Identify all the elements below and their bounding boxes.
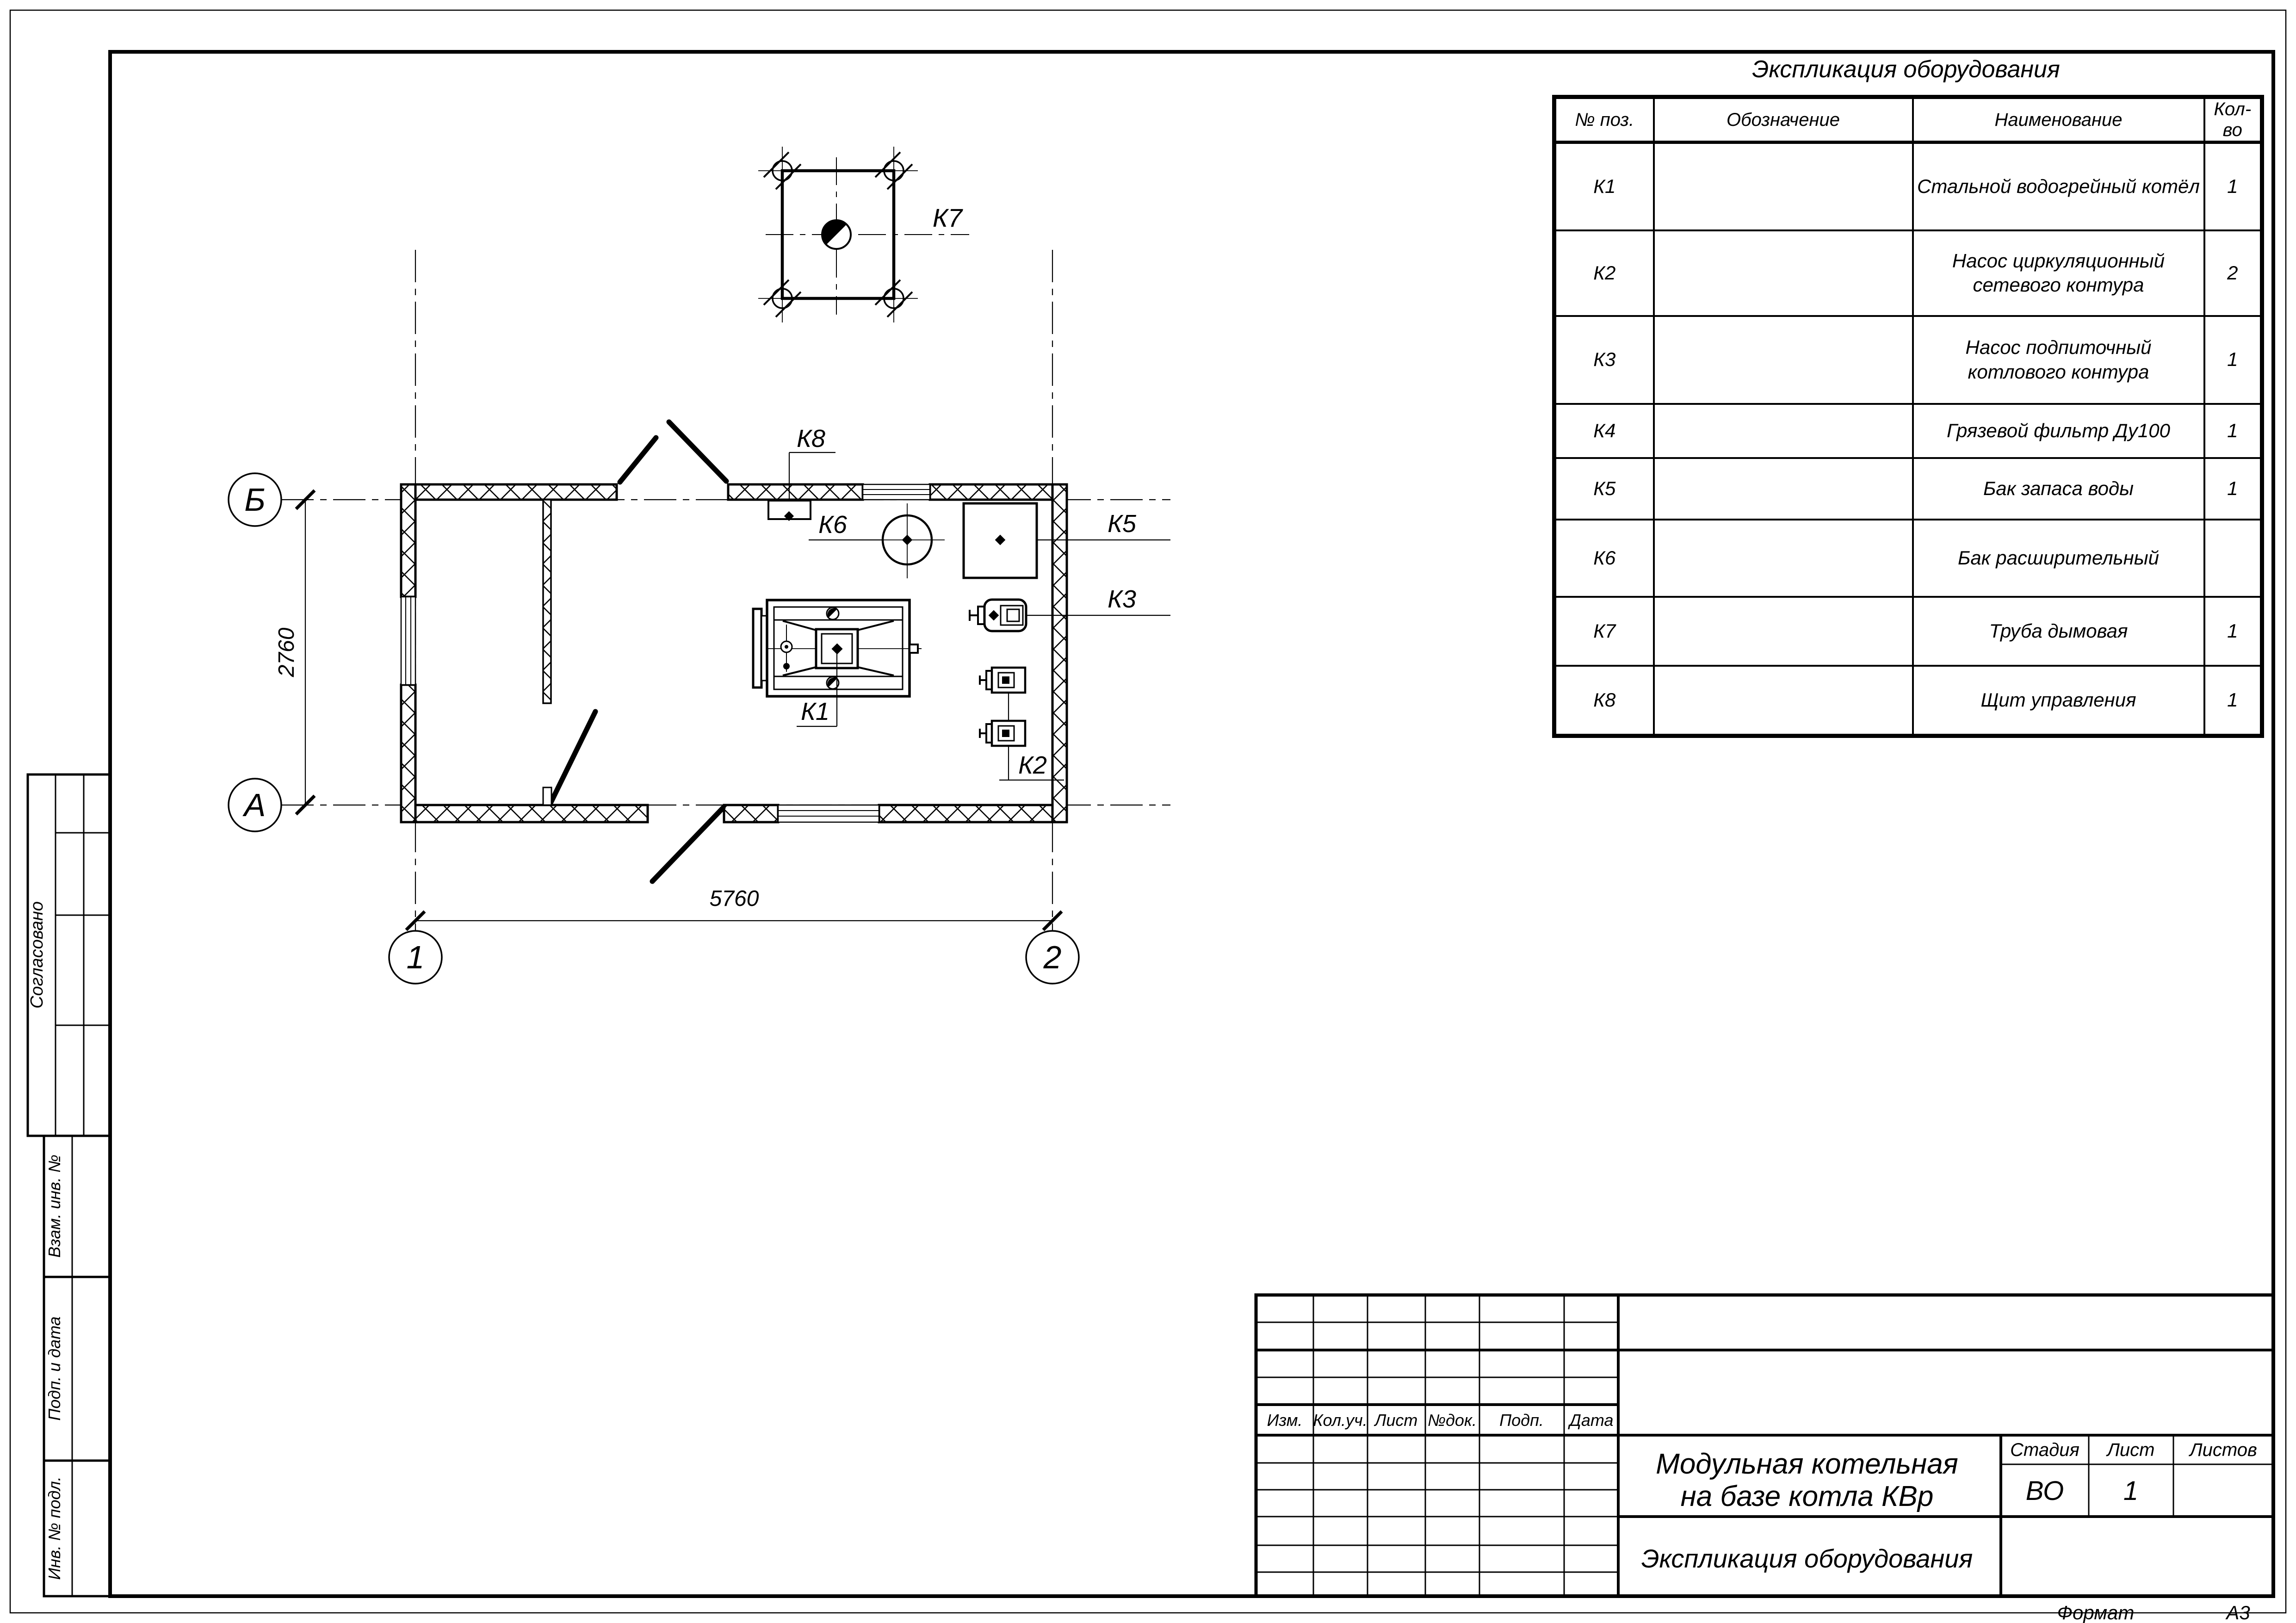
- wall-right: [1052, 484, 1067, 822]
- equipment-table-title: Экспликация оборудования: [1552, 56, 2260, 83]
- stamp-replace-inv-label: Взам. инв. №: [45, 1155, 64, 1258]
- stage-value: ВО: [2026, 1476, 2064, 1506]
- cell-qty: 1: [2204, 666, 2262, 736]
- cell-designation: [1654, 230, 1913, 316]
- anchor-bolt-icon: [870, 147, 918, 195]
- cell-qty: 1: [2204, 142, 2262, 230]
- cell-name: Бак запаса воды: [1913, 458, 2204, 520]
- cell-designation: [1654, 142, 1913, 230]
- boiler-furnace-door: [753, 609, 761, 688]
- anchor-bolt-icon: [758, 147, 806, 195]
- table-row: К4 Грязевой фильтр Ду100 1: [1554, 404, 2262, 458]
- wall-left-lower: [401, 685, 415, 822]
- sheets-label: Листов: [2188, 1440, 2257, 1460]
- cell-pos: К3: [1554, 316, 1654, 404]
- cell-designation: [1654, 666, 1913, 736]
- cell-name: Грязевой фильтр Ду100: [1913, 404, 2204, 458]
- format-value: А3: [2225, 1602, 2250, 1623]
- wall-top-right: [930, 484, 1067, 500]
- drawing-sheet: Б А 1 2 2760 5760: [0, 0, 2296, 1623]
- k6-expansion-tank: К6: [809, 503, 945, 578]
- col-header-pos: № поз.: [1554, 97, 1654, 142]
- dimension-vertical: 2760: [274, 490, 315, 814]
- doc-title: Экспликация оборудования: [1641, 1544, 1973, 1573]
- stamp-replace-inv: Взам. инв. №: [44, 1136, 110, 1277]
- cell-name: Насос циркуляционный сетевого контура: [1913, 230, 2204, 316]
- axis-label-a: А: [242, 787, 266, 823]
- cell-designation: [1654, 316, 1913, 404]
- cell-pos: К6: [1554, 520, 1654, 597]
- table-row: К6 Бак расширительный: [1554, 520, 2262, 597]
- stamp-agreed-label: Согласовано: [27, 901, 47, 1009]
- k6-tag: К6: [818, 511, 848, 539]
- col-header-des: Обозначение: [1654, 97, 1913, 142]
- table-header-row: № поз. Обозначение Наименование Кол-во: [1554, 97, 2262, 142]
- door-leaf-top-right: [669, 422, 726, 481]
- window-top: [863, 484, 930, 500]
- sheet-label: Лист: [2106, 1440, 2155, 1460]
- rev-header-ndok: №док.: [1428, 1411, 1477, 1430]
- cell-qty: 1: [2204, 316, 2262, 404]
- cell-name: Бак расширительный: [1913, 520, 2204, 597]
- door-leaf-bottom-exterior: [652, 808, 723, 881]
- k8-control-panel: К8: [768, 425, 835, 521]
- cell-qty: 2: [2204, 230, 2262, 316]
- k3-tag: К3: [1108, 585, 1136, 613]
- axis-label-1: 1: [407, 939, 425, 975]
- cell-qty: 1: [2204, 458, 2262, 520]
- k7-chimney-detail: К7: [758, 147, 969, 322]
- pump-icon: [980, 721, 1025, 746]
- cell-pos: К7: [1554, 597, 1654, 666]
- project-title-line2: на базе котла КВр: [1681, 1481, 1934, 1512]
- dim-2760: 2760: [274, 627, 299, 677]
- cell-pos: К4: [1554, 404, 1654, 458]
- stamp-inv-orig-label: Инв. № подл.: [45, 1476, 64, 1580]
- dimension-horizontal: 5760: [406, 886, 1062, 930]
- cell-name: Труба дымовая: [1913, 597, 2204, 666]
- k1-tag: К1: [801, 698, 829, 725]
- side-stamps: Согласовано Взам. инв. № Подп. и дата Ин…: [27, 774, 110, 1596]
- table-row: К2 Насос циркуляционный сетевого контура…: [1554, 230, 2262, 316]
- wall-top-mid: [728, 484, 863, 500]
- table-row: К7 Труба дымовая 1: [1554, 597, 2262, 666]
- cell-designation: [1654, 597, 1913, 666]
- cell-designation: [1654, 458, 1913, 520]
- format-label: Формат: [2057, 1602, 2135, 1623]
- title-block: Изм. Кол.уч. Лист №док. Подп. Дата Модул…: [1256, 1295, 2273, 1623]
- wall-bottom-right: [879, 805, 1067, 822]
- stage-label: Стадия: [2010, 1440, 2079, 1460]
- table-row: К3 Насос подпиточный котлового контура 1: [1554, 316, 2262, 404]
- table-row: К5 Бак запаса воды 1: [1554, 458, 2262, 520]
- project-title-line1: Модульная котельная: [1656, 1448, 1958, 1480]
- wall-left-upper: [401, 484, 415, 597]
- axis-label-2: 2: [1043, 939, 1062, 975]
- rev-header-podp: Подп.: [1499, 1411, 1544, 1430]
- k2-tag: К2: [1018, 751, 1047, 779]
- cell-name: Щит управления: [1913, 666, 2204, 736]
- cell-pos: К1: [1554, 142, 1654, 230]
- cell-name: Стальной водогрейный котёл: [1913, 142, 2204, 230]
- wall-bottom-mid: [724, 805, 778, 822]
- stamp-sign-date-label: Подп. и дата: [45, 1316, 64, 1420]
- anchor-bolt-icon: [758, 274, 806, 322]
- cell-pos: К5: [1554, 458, 1654, 520]
- k1-boiler: К1: [753, 600, 922, 726]
- cell-pos: К8: [1554, 666, 1654, 736]
- col-header-qty: Кол-во: [2204, 97, 2262, 142]
- door-leaf-partition: [551, 712, 595, 802]
- cell-pos: К2: [1554, 230, 1654, 316]
- k7-tag: К7: [933, 203, 963, 232]
- cell-designation: [1654, 520, 1913, 597]
- k8-tag: К8: [797, 425, 825, 452]
- anchor-bolt-icon: [870, 274, 918, 322]
- partition-wall: [543, 500, 551, 703]
- door-jamb: [543, 787, 551, 805]
- wall-bottom-left: [401, 805, 648, 822]
- window-bottom: [778, 805, 879, 822]
- sheet-value: 1: [2123, 1476, 2138, 1506]
- cell-qty: 1: [2204, 597, 2262, 666]
- stamp-sign-date: Подп. и дата: [44, 1277, 110, 1461]
- stamp-agreed: Согласовано: [27, 774, 110, 1136]
- rev-header-data: Дата: [1568, 1411, 1614, 1430]
- rev-header-list: Лист: [1374, 1411, 1418, 1430]
- pump-icon: [980, 668, 1025, 693]
- axis-markers: Б А 1 2: [229, 473, 1079, 984]
- dim-5760: 5760: [710, 886, 759, 911]
- stamp-inv-orig: Инв. № подл.: [44, 1461, 110, 1596]
- axis-label-b: Б: [244, 482, 266, 518]
- cell-designation: [1654, 404, 1913, 458]
- k5-tag: К5: [1108, 510, 1137, 538]
- door-leaf-top-left: [620, 438, 656, 482]
- rev-header-koluch: Кол.уч.: [1313, 1411, 1367, 1430]
- window-left: [401, 597, 415, 685]
- wall-top-left: [401, 484, 617, 500]
- equipment-table: № поз. Обозначение Наименование Кол-во К…: [1552, 95, 2264, 738]
- cell-qty: 1: [2204, 404, 2262, 458]
- cell-name: Насос подпиточный котлового контура: [1913, 316, 2204, 404]
- table-row: К1 Стальной водогрейный котёл 1: [1554, 142, 2262, 230]
- k3-makeup-pump: К3: [970, 585, 1170, 631]
- table-row: К8 Щит управления 1: [1554, 666, 2262, 736]
- rev-header-izm: Изм.: [1267, 1411, 1303, 1430]
- col-header-name: Наименование: [1913, 97, 2204, 142]
- cell-qty: [2204, 520, 2262, 597]
